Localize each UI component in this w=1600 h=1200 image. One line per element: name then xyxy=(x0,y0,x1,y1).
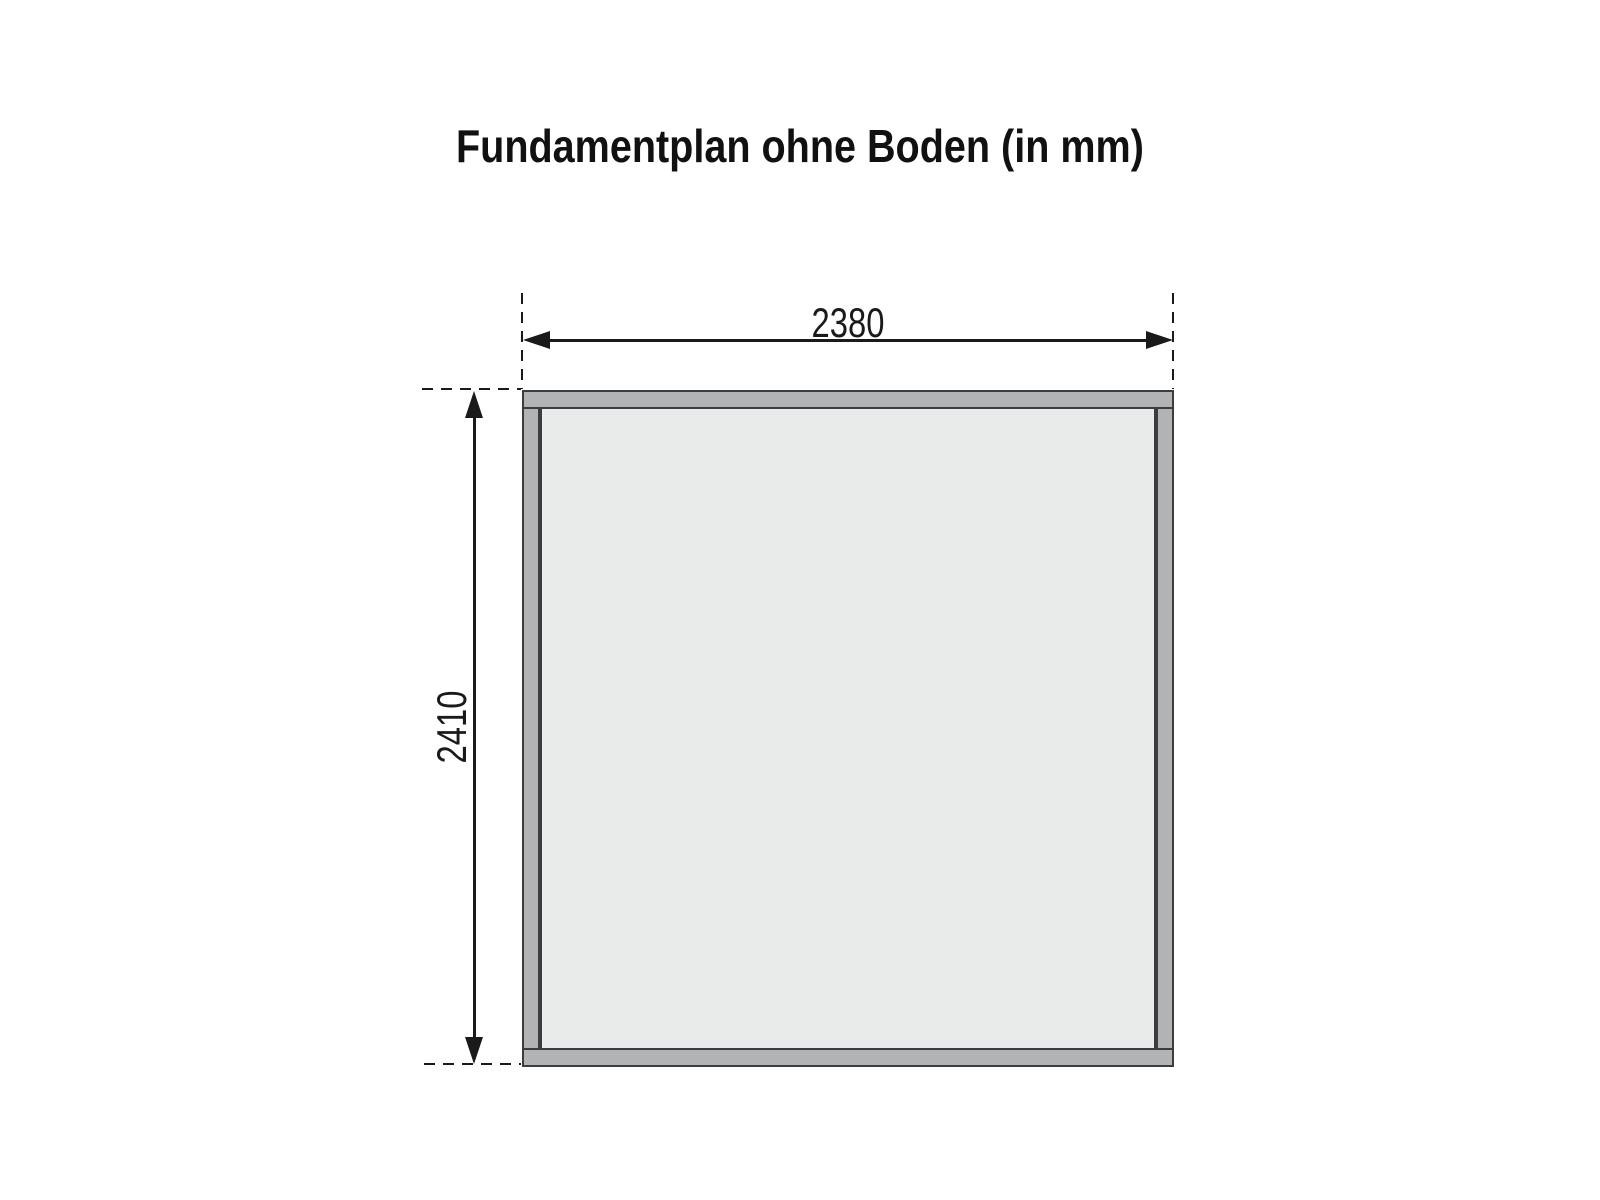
extension-line-left-bottom xyxy=(424,1063,521,1065)
extension-line-top-right xyxy=(1172,293,1174,389)
diagram-title: Fundamentplan ohne Boden (in mm) xyxy=(456,123,1144,169)
height-dimension-line xyxy=(473,402,476,1054)
arrow-right-icon xyxy=(1146,331,1173,349)
beam-right xyxy=(1156,407,1174,1050)
width-dimension-label: 2380 xyxy=(812,302,885,344)
height-dimension-label: 2410 xyxy=(431,691,473,764)
beam-bottom xyxy=(522,1048,1174,1067)
beam-left xyxy=(522,407,540,1050)
foundation-frame xyxy=(522,390,1174,1067)
extension-line-left-top xyxy=(422,388,521,390)
arrow-up-icon xyxy=(465,391,483,418)
arrow-left-icon xyxy=(523,331,550,349)
width-dimension-line xyxy=(533,339,1163,342)
arrow-down-icon xyxy=(465,1037,483,1064)
foundation-inner-area xyxy=(540,407,1156,1050)
extension-line-top-left xyxy=(521,293,523,389)
